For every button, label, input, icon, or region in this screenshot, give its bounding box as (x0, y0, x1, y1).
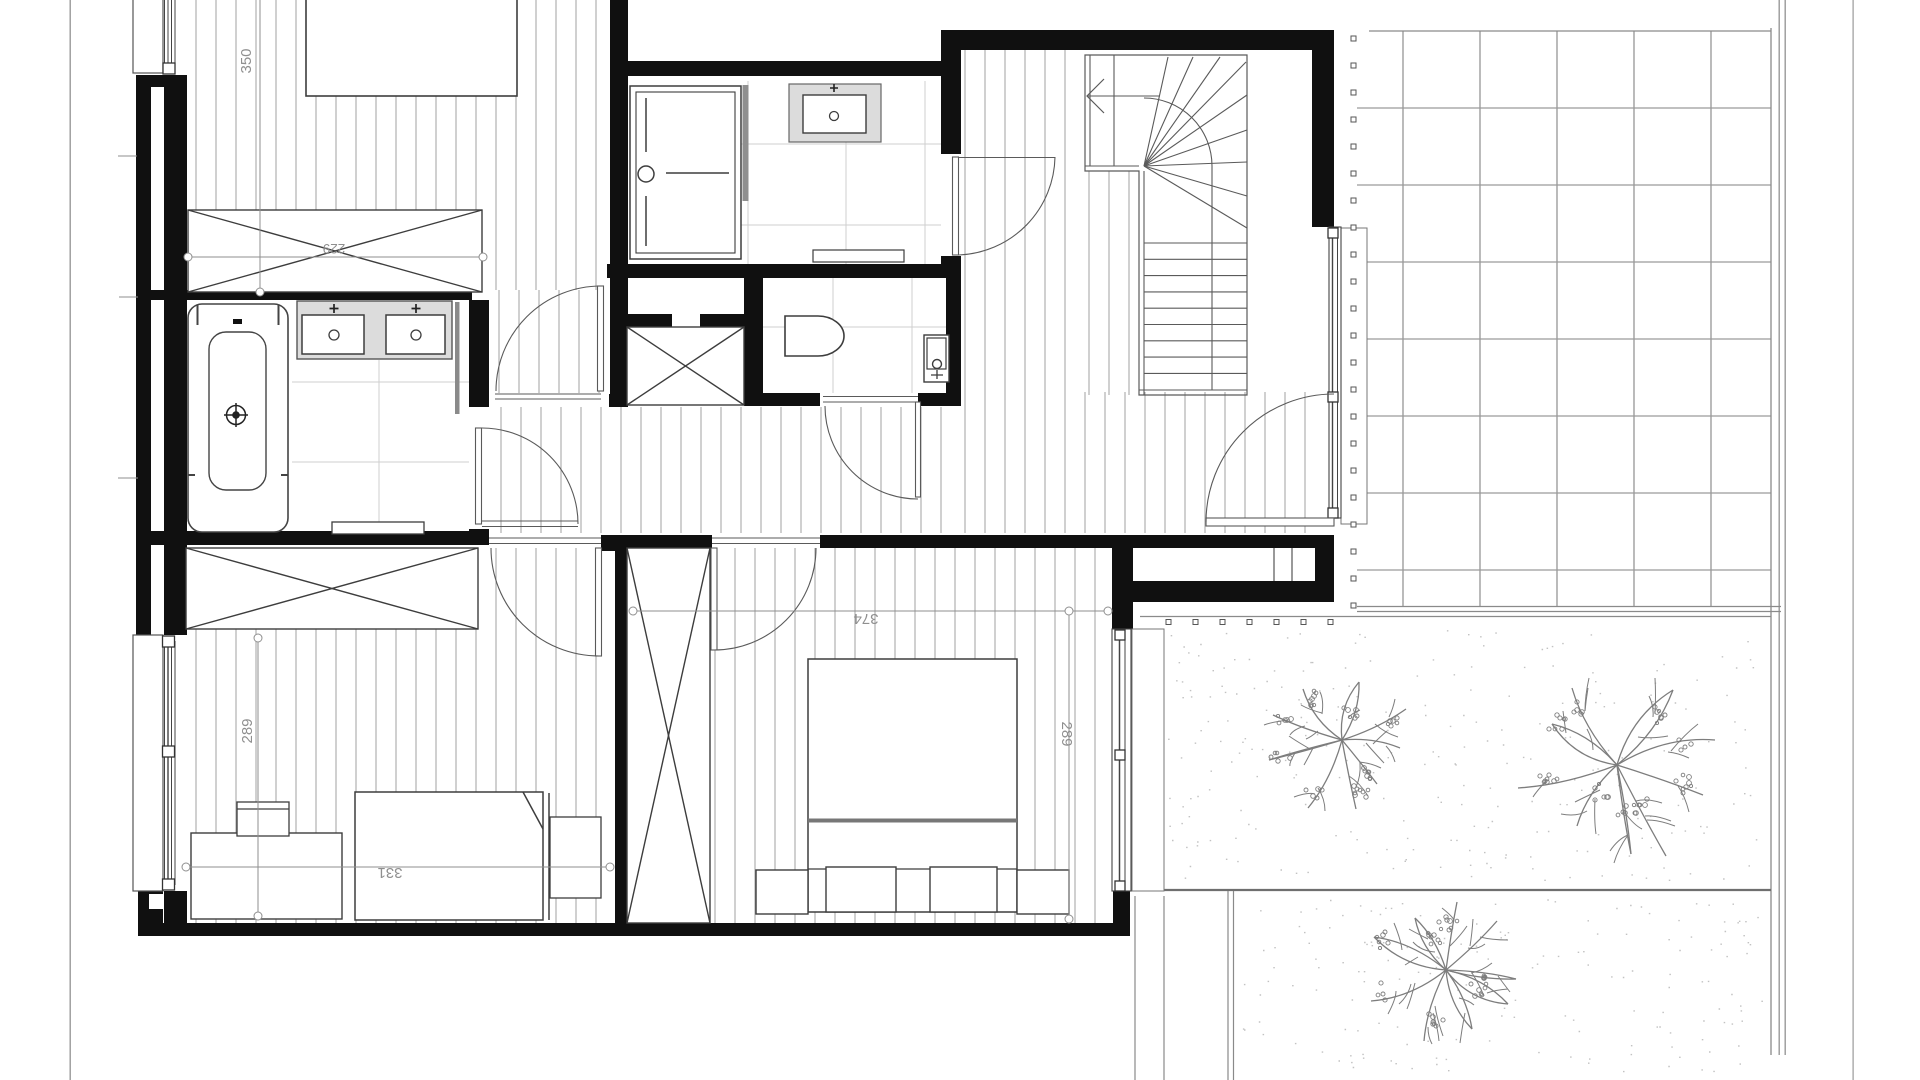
svg-text:289: 289 (239, 718, 256, 743)
svg-text:331: 331 (377, 864, 402, 881)
svg-text:289: 289 (1058, 721, 1075, 746)
svg-text:350: 350 (238, 48, 255, 73)
svg-text:229: 229 (323, 241, 346, 256)
svg-text:374: 374 (853, 610, 878, 627)
